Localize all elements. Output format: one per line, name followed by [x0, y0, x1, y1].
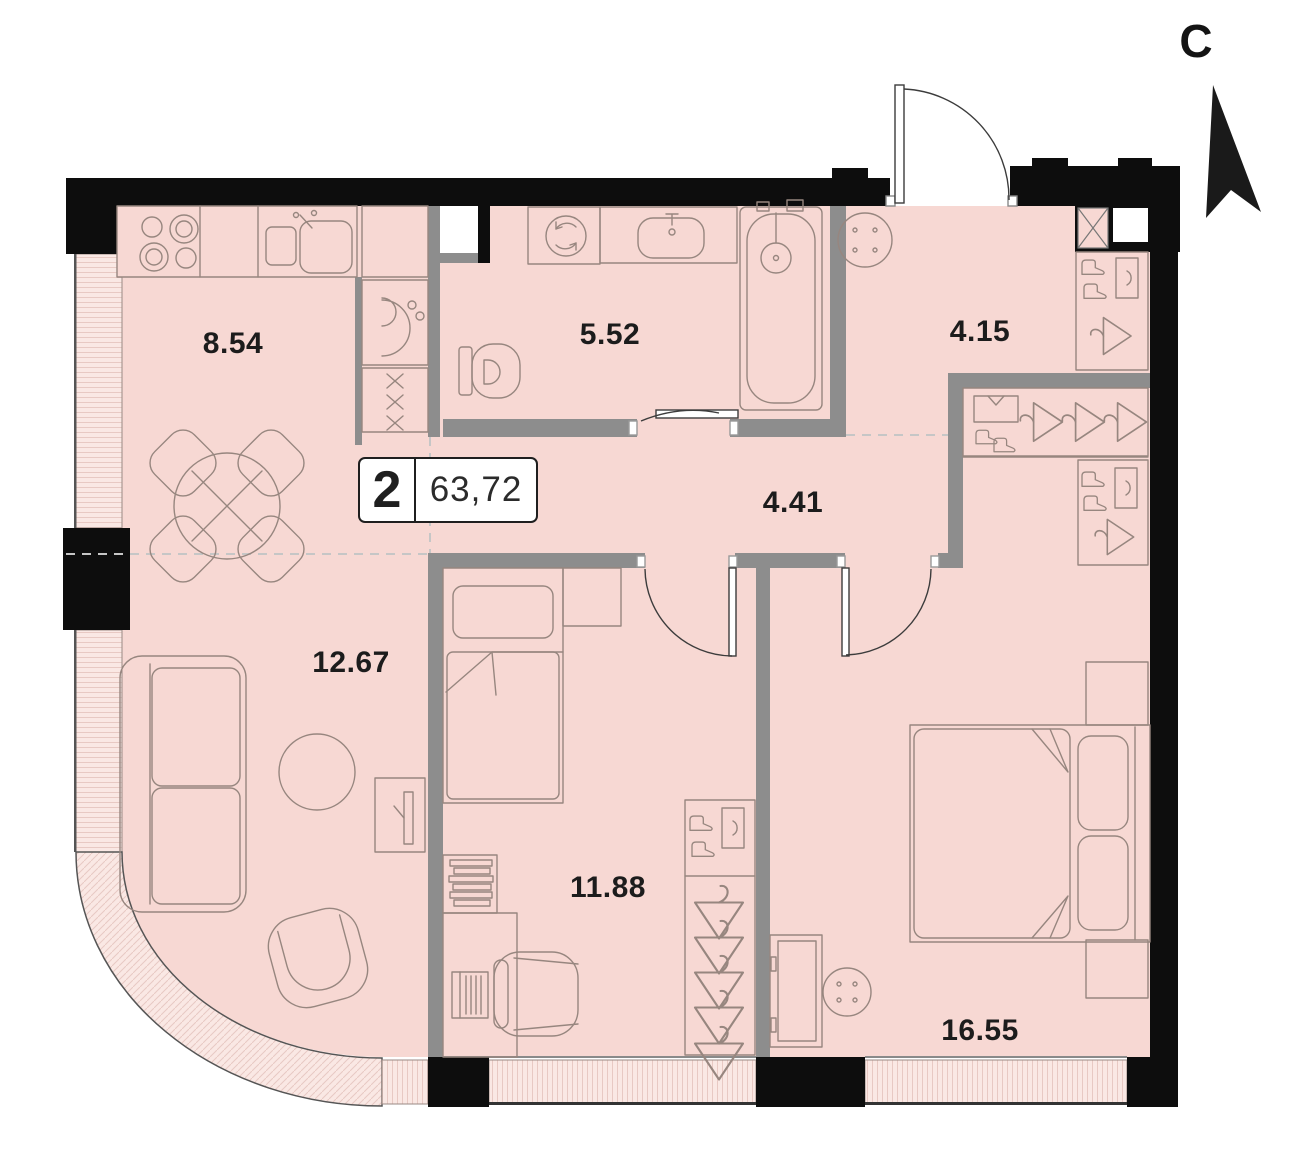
room-label-master-bedroom: 16.55	[941, 1014, 1019, 1048]
apartment-info-badge: 2 63,72	[358, 457, 538, 523]
wall-right	[1150, 166, 1178, 1107]
wall-bedroom-left	[428, 568, 443, 1057]
wall-bathroom-bottom-left	[443, 419, 637, 437]
facade-line-bottom-1	[489, 1102, 756, 1105]
wall-corridor-stub	[735, 553, 845, 568]
wall-shaft-kitchen	[476, 178, 490, 263]
north-arrow	[1206, 85, 1261, 218]
vent-shaft-white-2	[1113, 208, 1148, 242]
window-left-upper	[76, 254, 122, 528]
wall-under-shaft	[440, 253, 478, 263]
vent-shaft-white-1	[440, 206, 478, 253]
window-bottom-connector	[382, 1060, 428, 1104]
window-left-lower	[76, 630, 122, 852]
wall-kitchen-column	[355, 277, 362, 445]
wall-notch-3	[1118, 158, 1152, 167]
wall-hall-closet-vertical	[948, 373, 963, 568]
rooms-count: 2	[360, 459, 416, 521]
wall-bottom-middle	[756, 1057, 865, 1107]
entrance-door	[886, 85, 1017, 206]
floorplan-canvas: С 8.54 5.52 4.15 4.41 12.67 11.88 16.55 …	[0, 0, 1305, 1152]
wall-notch-2	[1032, 158, 1068, 167]
room-label-bathroom: 5.52	[580, 318, 640, 352]
total-area: 63,72	[416, 459, 536, 521]
north-label: С	[1179, 14, 1212, 68]
wall-bedroom-top	[428, 553, 645, 568]
window-bedroom	[489, 1060, 756, 1104]
room-label-corridor: 4.41	[763, 486, 823, 520]
window-master-bedroom	[865, 1060, 1127, 1104]
facade-line-bottom-2	[865, 1102, 1127, 1105]
window-sill-2	[865, 1056, 1127, 1058]
wall-notch-1	[832, 168, 868, 178]
room-label-living-room: 12.67	[312, 646, 390, 680]
wall-top-left-corner	[66, 178, 118, 254]
room-label-kitchen: 8.54	[203, 327, 263, 361]
floorplan-drawing	[0, 0, 1305, 1152]
wall-hall-closet-horizontal	[948, 373, 1150, 388]
wall-bathroom-bottom-right	[730, 419, 830, 437]
room-label-hallway: 4.15	[950, 315, 1010, 349]
shaft-x-box	[1078, 208, 1108, 248]
wall-bedrooms-divider	[756, 568, 770, 1057]
wall-bathroom-left	[428, 206, 440, 437]
wall-left-pier	[63, 528, 130, 630]
wall-bottom-left	[428, 1057, 489, 1107]
wall-bottom-right-corner	[1127, 1057, 1178, 1107]
room-label-bedroom: 11.88	[570, 871, 646, 905]
